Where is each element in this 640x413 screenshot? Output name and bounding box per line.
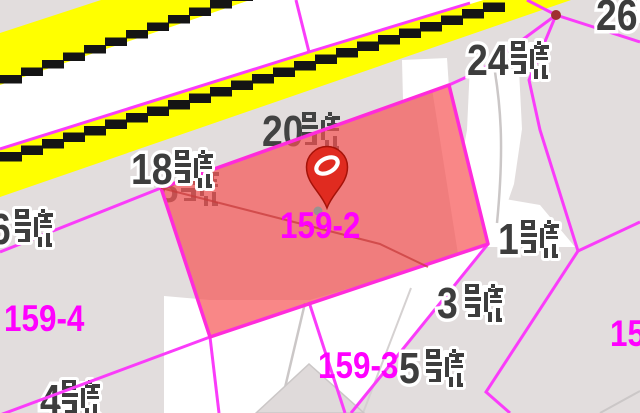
svg-text:159-5: 159-5 (610, 314, 640, 355)
svg-text:1: 1 (498, 214, 519, 264)
svg-text:26: 26 (596, 0, 638, 40)
svg-text:159-3: 159-3 (318, 346, 398, 387)
svg-text:6: 6 (0, 204, 11, 254)
svg-text:24: 24 (467, 35, 509, 85)
svg-text:18: 18 (131, 144, 173, 194)
svg-text:3: 3 (437, 278, 458, 328)
svg-text:5: 5 (399, 343, 420, 393)
svg-text:159-4: 159-4 (4, 299, 84, 340)
svg-text:159-2: 159-2 (280, 206, 360, 247)
